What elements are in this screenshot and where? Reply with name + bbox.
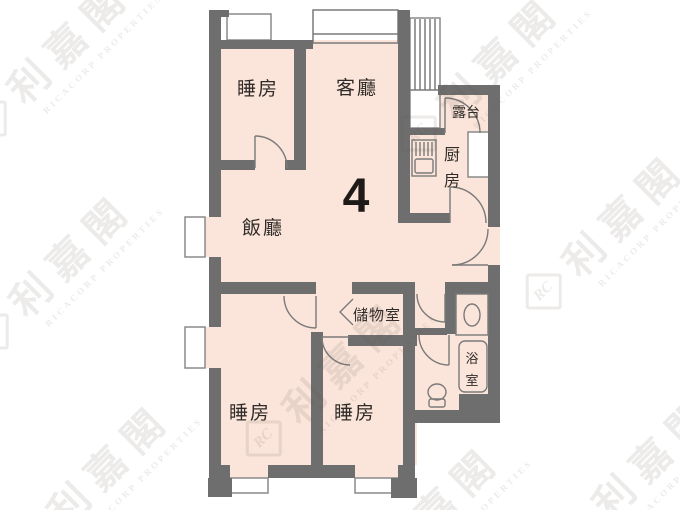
wall-bedroom-pier — [285, 160, 306, 170]
label-bedroom-top: 睡房 — [237, 78, 279, 100]
wall-foot-left — [208, 478, 232, 497]
label-living-room: 客廳 — [336, 77, 378, 99]
wall-storage-bottom — [348, 335, 417, 346]
window-sill — [230, 465, 268, 478]
window-sill — [355, 465, 398, 478]
bedroom-left-side-window — [185, 327, 205, 368]
wall-under-tub — [459, 394, 488, 410]
label-kitchen-char2: 房 — [444, 172, 460, 190]
dining-window — [185, 217, 205, 257]
entry-gap-fill — [488, 227, 500, 265]
label-bathroom-char1: 浴 — [465, 351, 478, 366]
wall-basin-partition — [445, 294, 456, 334]
label-storage: 儲物室 — [353, 307, 401, 324]
wall-balcony-divider — [398, 128, 445, 135]
wall-bottom-band — [268, 465, 355, 478]
wall-bedroom-living — [294, 40, 306, 170]
wall-top-cap — [209, 10, 229, 17]
label-bedroom-left: 睡房 — [229, 402, 271, 424]
label-bedroom-middle: 睡房 — [334, 402, 376, 424]
floorplan-svg: 睡房 客廳 露台 厨 房 飯廳 4 儲物室 浴 室 睡房 睡房 — [0, 0, 680, 510]
wall-wing-top — [438, 85, 500, 95]
label-unit-number: 4 — [343, 170, 370, 223]
wall-living-right — [398, 10, 410, 223]
wall-dining-bottom — [221, 282, 316, 294]
window-sill — [205, 217, 222, 257]
wall-bedroom-divider — [311, 332, 323, 465]
wall-bottom-band — [221, 465, 230, 478]
label-kitchen-char1: 厨 — [444, 147, 460, 164]
wall-left-mid — [209, 257, 221, 327]
wall-kitchen-bottom — [398, 213, 450, 223]
bedroom-top-window — [227, 14, 271, 40]
wall-bath-bottom — [412, 410, 500, 423]
wall-foot-right — [391, 478, 417, 498]
wall-lobby-stub — [415, 328, 447, 335]
window-sill — [205, 327, 222, 368]
label-balcony: 露台 — [452, 105, 480, 121]
wall-bottom-band — [398, 465, 412, 478]
hallway-fill — [398, 223, 488, 283]
wall-left-upper — [209, 10, 221, 217]
floorplan-canvas: 睡房 客廳 露台 厨 房 飯廳 4 儲物室 浴 室 睡房 睡房 RC利嘉閣 RI… — [0, 0, 680, 510]
wall-bedroom-bottom — [221, 160, 255, 170]
bedroom-left-window — [230, 478, 268, 493]
wall-left-lower — [209, 368, 221, 497]
wall-right-upper — [488, 95, 500, 227]
label-bathroom-char2: 室 — [465, 373, 478, 388]
bay-window — [313, 10, 398, 43]
wall-lobby-top — [445, 282, 500, 294]
label-dining-room: 飯廳 — [242, 217, 284, 239]
